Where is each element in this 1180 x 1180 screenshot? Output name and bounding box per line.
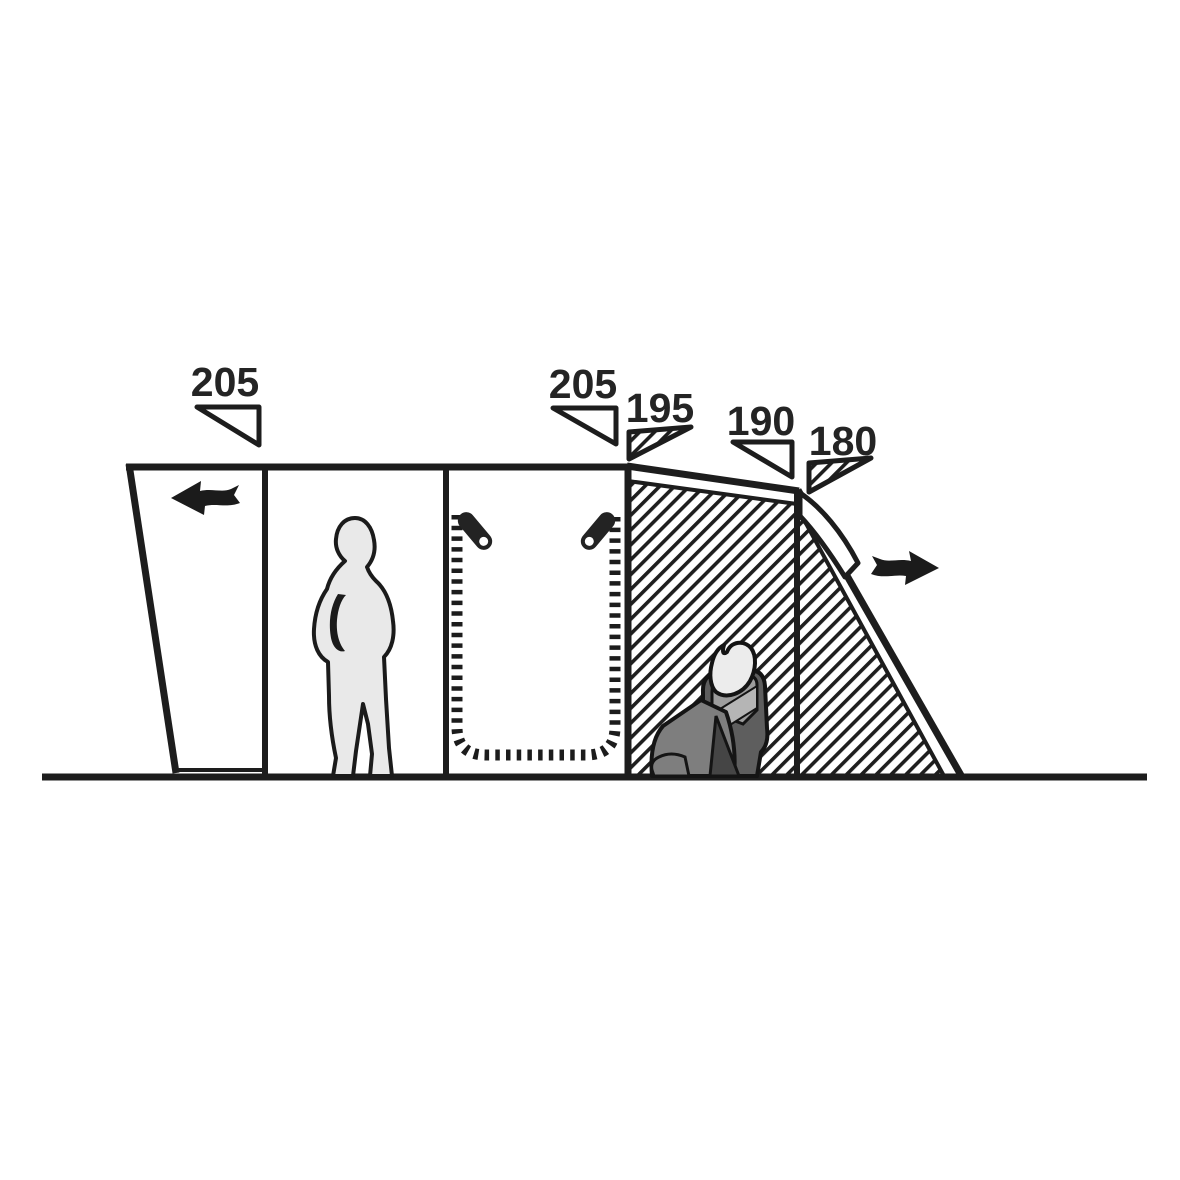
zipper-teeth-path (457, 515, 615, 755)
tent-rear-hatched-panel (797, 507, 944, 776)
marker-205-front (197, 407, 259, 445)
measurement-label-205-front: 205 (160, 362, 290, 403)
measurement-label-180: 180 (778, 421, 908, 462)
diagram-canvas (0, 0, 1180, 1180)
airflow-arrow-right-icon (871, 551, 939, 585)
front-slant-edge (129, 464, 176, 773)
person-standing-icon (314, 518, 394, 776)
airflow-arrow-left-icon (171, 481, 240, 515)
tent-dimension-diagram: 205 205 195 190 180 (0, 0, 1180, 1180)
marker-195 (629, 427, 691, 459)
inner-door-zipper (454, 509, 618, 755)
zipper-pull-left-icon (454, 509, 495, 554)
